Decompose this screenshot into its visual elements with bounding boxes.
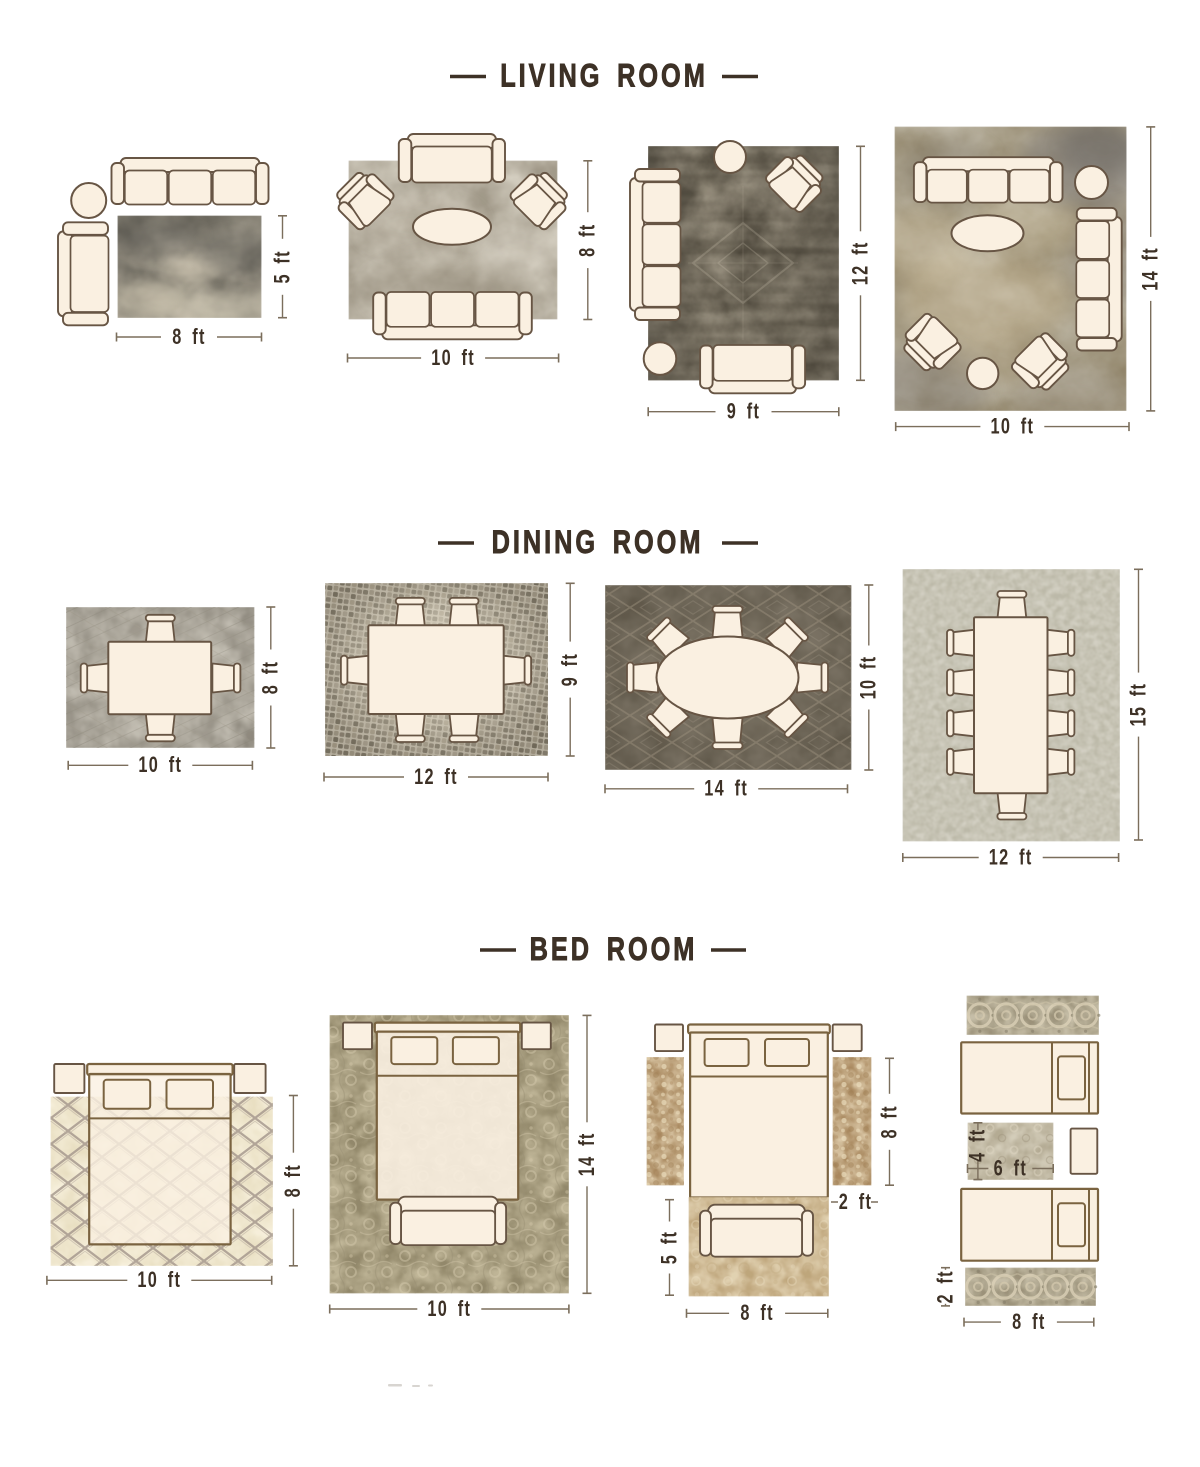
svg-text:14 ft: 14 ft bbox=[574, 1132, 599, 1176]
svg-text:9 ft: 9 ft bbox=[558, 653, 583, 686]
svg-text:10 ft: 10 ft bbox=[138, 753, 182, 778]
svg-text:2 ft: 2 ft bbox=[933, 1270, 958, 1303]
svg-text:8 ft: 8 ft bbox=[258, 661, 283, 694]
svg-text:8 ft: 8 ft bbox=[575, 223, 600, 256]
svg-text:12 ft: 12 ft bbox=[848, 241, 873, 285]
svg-text:14 ft: 14 ft bbox=[704, 776, 748, 801]
svg-text:12 ft: 12 ft bbox=[414, 764, 458, 789]
svg-text:10 ft: 10 ft bbox=[990, 414, 1034, 439]
svg-text:2 ft: 2 ft bbox=[839, 1189, 872, 1214]
svg-text:8 ft: 8 ft bbox=[740, 1301, 773, 1326]
svg-text:8 ft: 8 ft bbox=[172, 324, 205, 349]
svg-text:5 ft: 5 ft bbox=[657, 1231, 682, 1264]
svg-text:BED ROOM: BED ROOM bbox=[530, 932, 698, 968]
svg-text:5 ft: 5 ft bbox=[270, 250, 295, 283]
svg-text:10 ft: 10 ft bbox=[427, 1296, 471, 1321]
svg-text:8 ft: 8 ft bbox=[877, 1105, 902, 1138]
svg-text:10 ft: 10 ft bbox=[137, 1268, 181, 1293]
svg-text:LIVING ROOM: LIVING ROOM bbox=[500, 59, 708, 95]
svg-text:6 ft: 6 ft bbox=[994, 1156, 1027, 1181]
svg-text:8 ft: 8 ft bbox=[281, 1164, 306, 1197]
svg-text:10 ft: 10 ft bbox=[856, 656, 881, 700]
svg-text:15 ft: 15 ft bbox=[1126, 683, 1151, 727]
svg-text:12 ft: 12 ft bbox=[989, 845, 1033, 870]
svg-text:DINING ROOM: DINING ROOM bbox=[492, 525, 704, 561]
svg-text:10 ft: 10 ft bbox=[431, 345, 475, 370]
svg-text:8 ft: 8 ft bbox=[1012, 1310, 1045, 1335]
svg-text:14 ft: 14 ft bbox=[1138, 247, 1163, 291]
svg-text:4 ft: 4 ft bbox=[965, 1128, 990, 1161]
svg-text:9 ft: 9 ft bbox=[727, 399, 760, 424]
